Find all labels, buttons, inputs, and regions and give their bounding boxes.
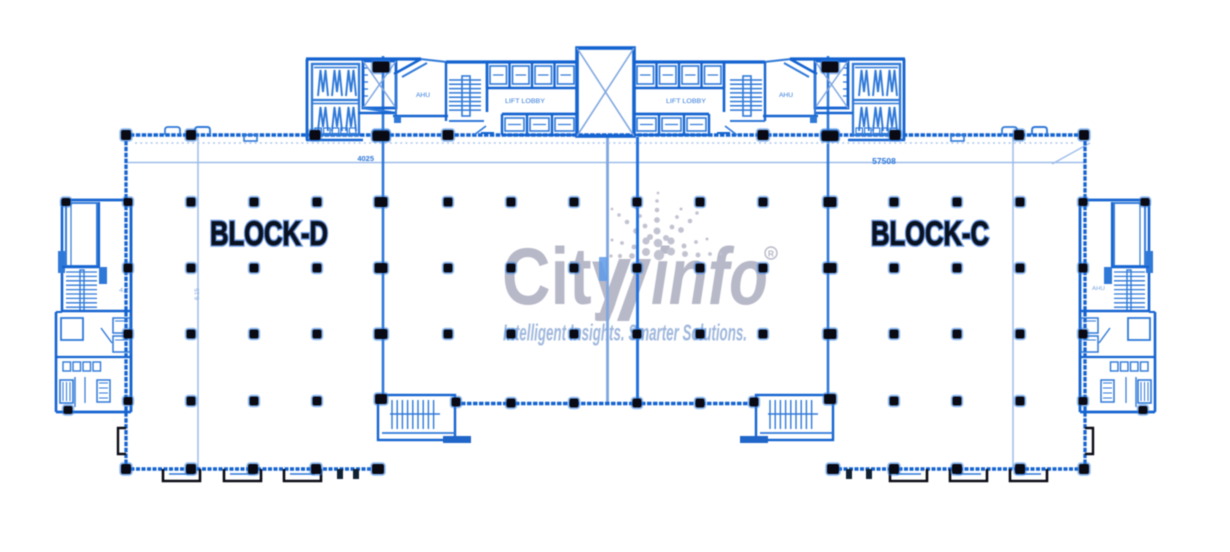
svg-text:LIFT LOBBY: LIFT LOBBY	[505, 99, 545, 105]
svg-text:AHU: AHU	[416, 93, 430, 99]
svg-text:BLOCK-C: BLOCK-C	[871, 215, 989, 253]
svg-text:BLOCK-D: BLOCK-D	[210, 215, 328, 253]
svg-text:57508: 57508	[872, 156, 896, 166]
svg-text:AHU: AHU	[1092, 286, 1105, 292]
svg-text:4025: 4025	[357, 154, 374, 163]
svg-text:R: R	[768, 249, 774, 259]
svg-text:LIFT LOBBY: LIFT LOBBY	[666, 99, 706, 105]
svg-text:AHU: AHU	[779, 93, 793, 99]
svg-text:info: info	[651, 232, 768, 322]
svg-text:4.7: 4.7	[119, 288, 129, 294]
svg-text:Intelligent Insights. Smarter: Intelligent Insights. Smarter Solutions.	[503, 320, 747, 346]
svg-text:6.15: 6.15	[195, 288, 201, 300]
